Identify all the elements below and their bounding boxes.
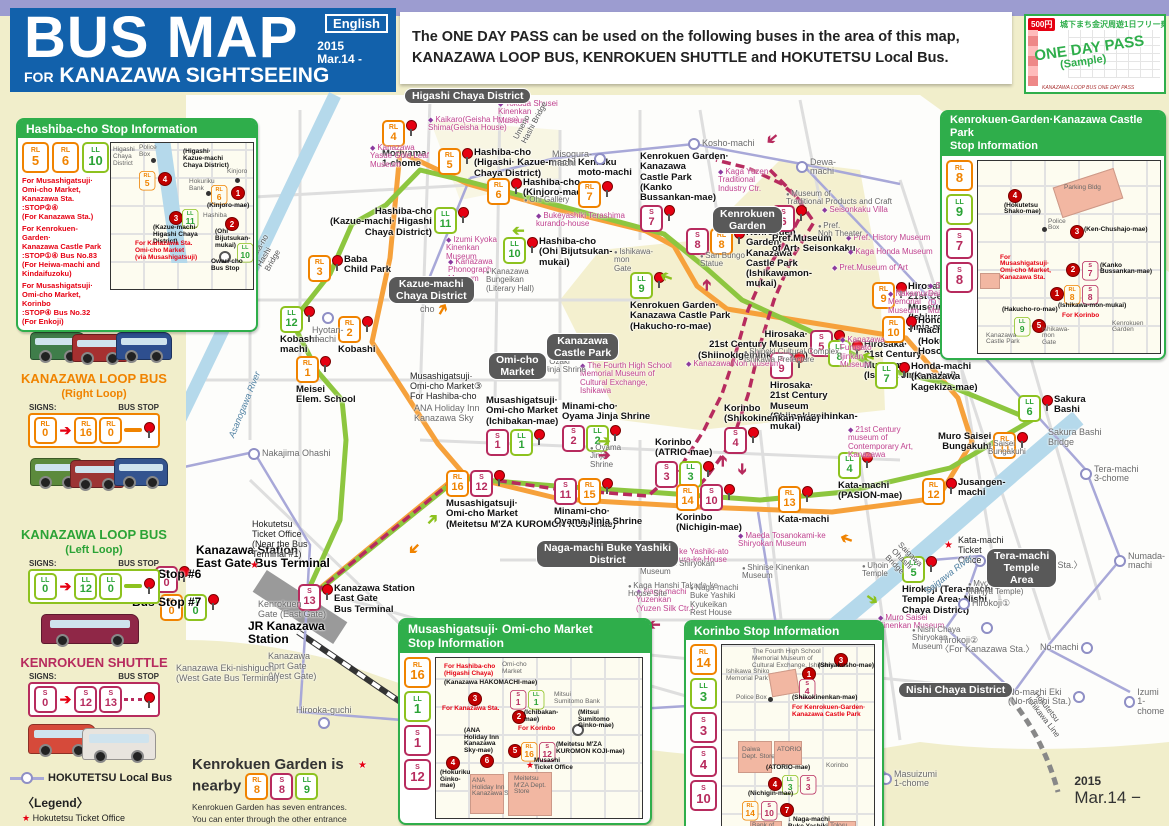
map-label: Kenrokuen Gate (East Gate) xyxy=(258,600,326,620)
map-bus-stop: S1LL1Musashigatsuji· Omi-cho Market (Ich… xyxy=(486,396,558,456)
bus-photo xyxy=(116,332,172,360)
museum-poi: 21st Century museum of Contemporary Art,… xyxy=(848,426,913,460)
left-loop-title: KANAZAWA LOOP BUS(Left Loop) xyxy=(8,528,180,557)
route-badge-LL11: LL11 xyxy=(434,207,457,234)
bus-stop-icon xyxy=(748,427,758,443)
route-badge-S12: S12 xyxy=(404,759,431,790)
district-badge: Naga-machi Buke Yashiki District xyxy=(536,540,679,568)
numbered-stop: 1 xyxy=(1050,287,1064,301)
map-bus-stop: RL12Jusangen- machi xyxy=(922,478,1006,505)
stop-label: Korinbo (ATRIO-mae) xyxy=(655,438,712,459)
route-badge-LL12: LL12 xyxy=(280,306,303,333)
map-bus-stop: S11RL15Minami-cho· Oyama Jinja Shrine xyxy=(554,478,642,528)
stop-label: Minami-cho· Oyama Jinja Shrine xyxy=(562,402,650,423)
page-subtitle: FOR KANAZAWA SIGHTSEEING xyxy=(24,64,329,88)
route-direction-arrow: ➔ xyxy=(403,538,425,560)
route-badge-RL7: RL7 xyxy=(578,181,601,208)
route-badge-RL0: RL0 xyxy=(34,417,57,444)
stop-label: Honda-machi (Kanazawa Kagekiza-mae) xyxy=(911,362,978,393)
bus-stop-icon xyxy=(144,692,154,708)
landmark-poi: San Bungo Statue xyxy=(700,252,745,269)
right-loop-signs: RL0➔RL16RL0 xyxy=(28,413,161,448)
route-badge-S10: S10 xyxy=(761,801,777,821)
hashiba-stop-info-box: Hashiba-cho Stop Information RL5RL6LL10L… xyxy=(16,118,258,332)
map-label: ★ xyxy=(250,560,259,571)
bus-stop-icon xyxy=(144,422,154,438)
map-bus-stop: LL10Hashiba-cho (Ohi Bijutsukan- mukai) xyxy=(503,237,612,268)
route-badge-RL8: RL8 xyxy=(946,160,973,191)
hashiba-mini-map: Higashi Chaya DistrictPolice Box(Higashi… xyxy=(110,142,254,290)
route-badge-RL12: RL12 xyxy=(922,478,945,505)
district-badge: Omi-cho Market xyxy=(488,352,547,380)
map-bus-stop: LL6Sakura Bashi xyxy=(1018,395,1086,422)
bus-map-page: BUS MAP FOR KANAZAWA SIGHTSEEING English… xyxy=(0,0,1169,826)
route-badge-RL10: RL10 xyxy=(882,316,905,343)
map-label: JR Kanazawa Station xyxy=(248,620,325,646)
route-badge-RL3: RL3 xyxy=(308,255,331,282)
map-edition-footer: 2015 Mar.14 − xyxy=(1074,774,1141,808)
map-bus-stop: RL3Baba Child Park xyxy=(308,255,391,282)
route-badge-S12: S12 xyxy=(470,470,493,497)
kenrokuen-stop-info-box: Kenrokuen-Garden·Kanazawa Castle Park St… xyxy=(940,110,1166,360)
bus-stop-icon xyxy=(362,316,372,332)
kenrokuen-box-title: Kenrokuen-Garden·Kanazawa Castle Park St… xyxy=(942,112,1164,156)
left-loop-bus-photos xyxy=(30,456,160,490)
stop-label: Sakura Bashi xyxy=(1054,395,1086,416)
museum-poi: Pret.Museum of Art xyxy=(832,264,908,272)
route-badge-LL6: LL6 xyxy=(1018,395,1041,422)
local-bus-stop: Kosho-machi xyxy=(688,138,755,150)
map-bus-stop: LL7Honda-machi (Kanazawa Kagekiza-mae) xyxy=(875,362,978,393)
local-bus-stop: Tera-machi 3-chome xyxy=(1080,465,1139,484)
landmark-poi: Shinise Kinenkan Museum xyxy=(742,564,809,581)
route-badge-S1: S1 xyxy=(486,429,509,456)
bus-stop-icon xyxy=(802,486,812,502)
route-badge-S8: S8 xyxy=(946,262,973,293)
landmark-poi: Shinoki Cultural Complex, Ishikawa Prefe… xyxy=(744,348,841,365)
route-direction-arrow: ➔ xyxy=(421,508,443,530)
bus-stop-icon xyxy=(322,584,332,600)
stop-label: Korinbo (Nichigin-mae) xyxy=(676,513,742,534)
local-stop-icon xyxy=(1080,468,1092,480)
district-badge: Nishi Chaya District xyxy=(898,682,1013,698)
bus-stop-icon xyxy=(208,594,218,610)
route-badge-RL14: RL14 xyxy=(676,484,699,511)
bus-stop-icon xyxy=(320,356,330,372)
one-day-pass-sample: 500円 城下まち金沢周遊1日フリー乗車券 ONE DAY PASS (Samp… xyxy=(1024,14,1166,94)
museum-poi: Nakamura Memorial Museum xyxy=(888,290,932,315)
shuttle-signs: S0➔S12S13 xyxy=(28,682,161,717)
map-bus-stop: S3LL3Korinbo (ATRIO-mae) xyxy=(655,438,713,488)
route-badge-S7: S7 xyxy=(640,205,663,232)
bus-stop-icon xyxy=(602,478,612,494)
route-badge-RL5: RL5 xyxy=(139,171,155,191)
numbered-stop: 5 xyxy=(508,744,522,758)
route-badge-RL0: RL0 xyxy=(99,417,122,444)
local-bus-stop: Hirokoji① xyxy=(958,598,1010,610)
route-direction-arrow: ➔ xyxy=(733,463,751,476)
numbered-stop: 2 xyxy=(1066,263,1080,277)
banner-line1: The ONE DAY PASS can be used on the foll… xyxy=(412,27,1000,48)
bus-stop-icon xyxy=(527,237,537,253)
ticket-office-star: ★ xyxy=(526,760,534,771)
route-badge-RL5: RL5 xyxy=(438,148,461,175)
local-stop-icon xyxy=(1114,555,1126,567)
map-label: Musashigatsuji· Omi-cho Market③ For Hash… xyxy=(410,372,482,402)
bus-stop-icon xyxy=(1042,395,1052,411)
route-badge-RL14: RL14 xyxy=(742,801,758,821)
landmark-poi: Museum of Traditional Products and Craft xyxy=(786,190,892,207)
route-badge-S3: S3 xyxy=(655,461,678,488)
stop-label: Baba Child Park xyxy=(344,255,391,276)
landmark-poi: Kanazawa Bungeikan (Literary Hall) xyxy=(486,268,534,293)
museum-poi: Bukeyashiki Terashima kurando-house xyxy=(536,212,625,229)
route-badge-RL5: RL5 xyxy=(22,142,49,173)
route-badge-S12: S12 xyxy=(74,686,97,713)
local-stop-icon xyxy=(248,448,260,460)
bus-stop-icon xyxy=(511,178,521,194)
bus-photo xyxy=(114,458,168,486)
route-badge-S3: S3 xyxy=(690,712,717,743)
stop-label: Kenrokuen Garden· Kanazawa Castle Park (… xyxy=(630,301,730,332)
legend: 〈Legend〉 ★ Hokutetsu Ticket Office ◆ Mun… xyxy=(22,796,187,826)
route-badge-S1: S1 xyxy=(404,725,431,756)
numbered-stop: 4 xyxy=(768,777,782,791)
landmark-poi: Naga-machi Buke Yashiki Kyukeikan Rest H… xyxy=(690,584,738,618)
local-stop-icon xyxy=(594,153,606,165)
map-label: ANA Holiday Inn Kanazawa Sky xyxy=(414,404,480,424)
route-badge-S13: S13 xyxy=(99,686,122,713)
bus-stop-icon xyxy=(724,484,734,500)
local-bus-stop: Numada- machi xyxy=(1114,552,1165,571)
route-badge-S11: S11 xyxy=(554,478,577,505)
map-bus-stop: RL14S10Korinbo (Nichigin-mae) xyxy=(676,484,742,534)
pass-jp-title: 城下まち金沢周遊1日フリー乗車券 xyxy=(1060,19,1166,30)
local-stop-icon xyxy=(1124,696,1135,708)
district-badge: Kanazawa Castle Park xyxy=(546,333,619,361)
numbered-stop: 6 xyxy=(480,754,494,768)
route-badge-RL1: RL1 xyxy=(296,356,319,383)
route-badge-S10: S10 xyxy=(700,484,723,511)
bus-stop-icon xyxy=(458,207,468,223)
banner-line2: KANAZAWA LOOP BUS, KENROKUEN SHUTTLE and… xyxy=(412,48,1000,69)
bus-stop-icon xyxy=(602,181,612,197)
route-badge-S4: S4 xyxy=(724,427,747,454)
landmark-poi: Ishikawa- mon Gate xyxy=(614,248,653,273)
route-badge-LL12: LL12 xyxy=(74,573,97,600)
local-bus-stop: Misogura- machi xyxy=(552,150,606,169)
landmark-poi: Pref. Noh Theater xyxy=(818,222,862,239)
numbered-stop: 3 xyxy=(1070,225,1084,239)
page-title: BUS MAP xyxy=(24,4,298,71)
arrow-icon: ➔ xyxy=(60,691,72,708)
local-stop-icon xyxy=(21,772,33,784)
bus-stop-icon xyxy=(899,362,909,378)
local-bus-stop: Hyotan- machi xyxy=(312,312,344,345)
kenrokuen-nearby-note: Kenrokuen Garden is nearby RL8S8LL9 Kenr… xyxy=(192,756,402,826)
local-stop-icon xyxy=(318,717,330,729)
map-bus-stop: RL2Kobashi xyxy=(338,316,375,355)
route-badge-LL1: LL1 xyxy=(404,691,431,722)
language-badge: English xyxy=(325,14,388,33)
district-badge: Kenrokuen Garden xyxy=(712,206,783,234)
local-stop-icon xyxy=(958,598,970,610)
legend-title: 〈Legend〉 xyxy=(22,796,187,811)
route-badge-RL6: RL6 xyxy=(52,142,79,173)
route-badge-S7: S7 xyxy=(946,228,973,259)
landmark-poi: Uhoin Temple xyxy=(862,562,888,579)
route-direction-arrow: ➔ xyxy=(713,455,731,468)
route-badge-S4: S4 xyxy=(690,746,717,777)
bus-stop-icon xyxy=(796,205,806,221)
local-stop-icon xyxy=(1081,642,1093,654)
route-direction-arrow: ➔ xyxy=(762,128,783,150)
route-badge-LL0: LL0 xyxy=(34,573,57,600)
route-direction-arrow: ➔ xyxy=(598,446,611,464)
route-badge-LL1: LL1 xyxy=(510,429,533,456)
local-stop-icon xyxy=(322,312,334,324)
landmark-poi: Ohi Gallery xyxy=(524,196,569,204)
bus-stop-icon xyxy=(534,429,544,445)
route-badge-S1: S1 xyxy=(510,690,526,710)
legend-item-ticket-office: ★ Hokutetsu Ticket Office xyxy=(22,813,187,824)
landmark-poi: Saisei Bungakuhi xyxy=(988,440,1026,457)
one-day-pass-banner: The ONE DAY PASS can be used on the foll… xyxy=(400,12,1012,84)
stop-label: Kanazawa Station East Gate Bus Terminal xyxy=(334,584,415,615)
route-badge-S3: S3 xyxy=(800,775,816,795)
stop-label: Hashiba-cho (Ohi Bijutsukan- mukai) xyxy=(539,237,612,268)
map-bus-stop: RL13Kata-machi xyxy=(778,486,829,525)
local-stop-icon xyxy=(1073,691,1085,703)
korinbo-mini-map: The Fourth High School Memorial Museum o… xyxy=(721,644,875,826)
musashi-mini-map: For Hashiba-cho (Higashi Chaya)(Kanazawa… xyxy=(435,657,643,819)
route-badge-S8: S8 xyxy=(270,773,293,800)
route-badge-LL0: LL0 xyxy=(99,573,122,600)
korinbo-box-title: Korinbo Stop Information xyxy=(686,622,882,640)
local-stop-icon xyxy=(981,622,993,634)
local-stop-icon xyxy=(796,161,808,173)
stop-label: Minami-cho· Oyama Jinja Shrine xyxy=(554,507,642,528)
route-badge-S0: S0 xyxy=(34,686,57,713)
title-block: BUS MAP FOR KANAZAWA SIGHTSEEING English… xyxy=(10,8,396,92)
museum-poi: Kanazawa Yasue Gold Leaf Museum xyxy=(370,144,429,169)
district-badge: Tera-machi Temple Area xyxy=(986,548,1057,588)
museum-poi: Kaga Yuzen Traditional Industry Ctr. xyxy=(718,168,768,193)
stop-label: Kata-machi xyxy=(778,515,829,525)
bus-stop-icon xyxy=(610,425,620,441)
local-bus-photos xyxy=(28,720,158,764)
route-badge-LL10: LL10 xyxy=(503,237,526,264)
stop-label: Kobashi xyxy=(338,345,375,355)
route-badge-LL1: LL1 xyxy=(528,690,544,710)
route-badge-S7: S7 xyxy=(1082,261,1098,281)
route-direction-arrow: ➔ xyxy=(512,222,525,240)
route-badge-S2: S2 xyxy=(562,425,585,452)
route-badge-RL16: RL16 xyxy=(404,657,431,688)
map-label: Hokutetsu Ticket Office (Near the Bus Te… xyxy=(252,520,308,560)
map-label: ★ xyxy=(944,540,953,551)
district-badge: Kazue-machi Chaya District xyxy=(388,276,475,304)
museum-poi: Seisonkaku Villa xyxy=(822,206,888,214)
stop-label: Hashiba-cho (Kazue-machi· Higashi Chaya … xyxy=(330,207,432,238)
route-direction-arrow: ➔ xyxy=(837,528,855,549)
stop-label: Musashigatsuji· Omi-cho Market (Ichibaka… xyxy=(486,396,558,427)
route-badge-LL3: LL3 xyxy=(690,678,717,709)
route-badge-LL10: LL10 xyxy=(82,142,109,173)
local-bus-stop: Hirooka-guchi xyxy=(296,706,352,729)
museum-poi: The Fourth High School Memorial Museum o… xyxy=(580,362,672,396)
numbered-stop: 4 xyxy=(1008,189,1022,203)
route-badge-LL9: LL9 xyxy=(946,194,973,225)
stop-label: Jusangen- machi xyxy=(958,478,1006,499)
map-label: Sakura Bashi Bridge xyxy=(1048,428,1102,448)
route-badge-RL14: RL14 xyxy=(690,644,717,675)
bus-stop-icon xyxy=(494,470,504,486)
district-badge: Higashi Chaya District xyxy=(404,88,531,104)
map-bus-stop: S4Korinbo (Shikokinenkan-mae) xyxy=(724,404,820,454)
local-bus-stop: Dewa- machi xyxy=(796,158,836,177)
stop-label: Muro Saisei Bungakuhi xyxy=(938,432,991,453)
route-badge-RL8: RL8 xyxy=(245,773,268,800)
route-badge-RL16: RL16 xyxy=(74,417,97,444)
bus-stop-icon xyxy=(664,205,674,221)
local-bus-stop: No-machi xyxy=(1040,642,1093,654)
local-bus-stop: Nakajima Ohashi xyxy=(248,448,331,460)
local-bus-legend: HOKUTETSU Local Bus xyxy=(10,772,172,784)
route-direction-arrow: ➔ xyxy=(697,279,715,292)
numbered-stop: 4 xyxy=(446,756,460,770)
landmark-poi: Nishi Chaya Shiryokan Museum xyxy=(912,626,960,651)
map-label: Asanogawa River xyxy=(227,370,263,439)
route-badge-RL6: RL6 xyxy=(487,178,510,205)
stop-label: Korinbo (Shikokinenkan-mae) xyxy=(724,404,820,425)
numbered-stop: 3 xyxy=(468,692,482,706)
bus-stop-icon xyxy=(703,461,713,477)
route-badge-RL15: RL15 xyxy=(578,478,601,505)
stop-label: Meisei Elem. School xyxy=(296,385,356,406)
map-label: Kanazawa Eki-nishiguchi (West Gate Bus T… xyxy=(176,664,279,684)
museum-poi: Kaga Honda Museum xyxy=(848,248,933,256)
bus-photo xyxy=(82,728,156,760)
bus-stop-icon xyxy=(406,120,416,136)
bus-stop-icon xyxy=(332,255,342,271)
hashiba-box-title: Hashiba-cho Stop Information xyxy=(18,120,256,138)
map-bus-stop: RL1Meisei Elem. School xyxy=(296,356,356,406)
numbered-stop: 7 xyxy=(780,803,794,817)
map-bus-stop: LL11Hashiba-cho (Kazue-machi· Higashi Ch… xyxy=(330,207,468,238)
route-badge-RL13: RL13 xyxy=(778,486,801,513)
bus-stop-icon xyxy=(946,478,956,494)
local-bus-label: HOKUTETSU Local Bus xyxy=(48,772,172,784)
stop-label: Kenrokuen Garden· Kanazawa Castle Park (… xyxy=(640,152,729,203)
shuttle-title: KENROKUEN SHUTTLE xyxy=(8,656,180,670)
musashi-box-title: Musashigatsuji· Omi-cho Market Stop Info… xyxy=(400,620,650,653)
route-direction-arrow: ➔ xyxy=(862,588,883,610)
route-badge-LL9: LL9 xyxy=(630,272,653,299)
local-stop-icon xyxy=(688,138,700,150)
museum-poi: Maeda Tosanokami-ke Shiryokan Museum xyxy=(738,532,826,549)
stop-label: Kata-machi (PASION-mae) xyxy=(838,481,902,502)
route-badge-RL16: RL16 xyxy=(446,470,469,497)
bus-stop-icon xyxy=(906,316,916,332)
right-loop-title: KANAZAWA LOOP BUS(Right Loop) xyxy=(8,372,180,401)
numbered-stop: 1 xyxy=(231,186,245,200)
bus-stop-icon xyxy=(144,578,154,594)
edition-date: 2015Mar.14 - xyxy=(317,40,362,66)
musashi-stop-info-box: Musashigatsuji· Omi-cho Market Stop Info… xyxy=(398,618,652,825)
route-badge-LL9: LL9 xyxy=(295,773,318,800)
local-bus-stop: Masuizumi 1-chome xyxy=(880,770,937,789)
shuttle-bus-photo xyxy=(35,612,155,646)
kenrokuen-mini-map: Parking Bldg4(Hokutetsu Shako-mae)Police… xyxy=(977,160,1161,354)
arrow-icon: ➔ xyxy=(60,422,72,439)
bus-stop-icon xyxy=(462,148,472,164)
pass-footer-text: KANAZAWA LOOP BUS ONE DAY PASS xyxy=(1042,85,1134,91)
route-badge-S10: S10 xyxy=(690,780,717,811)
korinbo-stop-info-box: Korinbo Stop Information RL14LL3S3S4S10 … xyxy=(684,620,884,826)
local-bus-stop: Izumi 1-chome xyxy=(1124,688,1169,716)
left-loop-signs: LL0➔LL12LL0 xyxy=(28,569,161,604)
bus-photo xyxy=(41,614,139,644)
bus-stop-icon xyxy=(926,556,936,572)
arrow-icon: ➔ xyxy=(60,578,72,595)
